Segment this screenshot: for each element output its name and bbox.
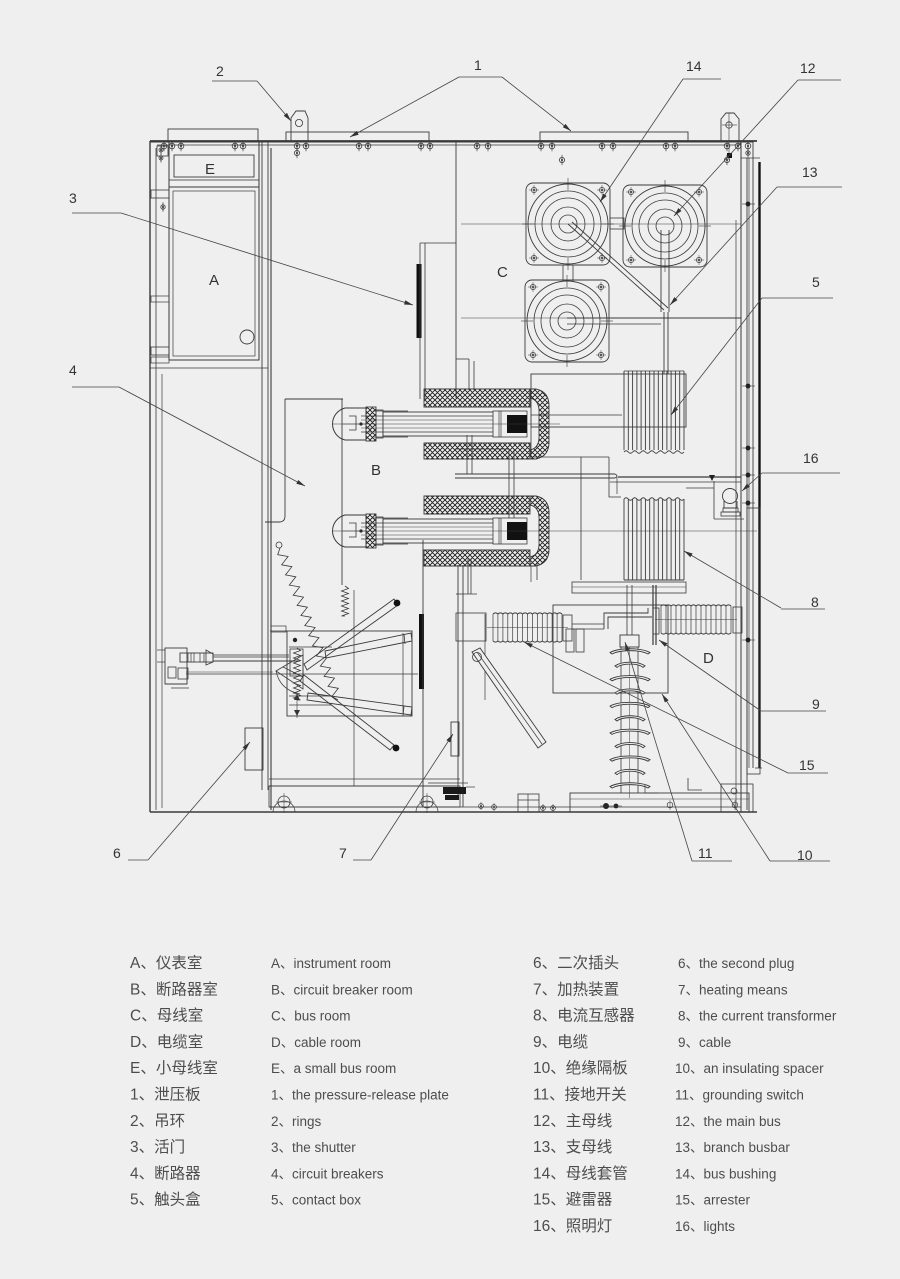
svg-text:6: 6	[113, 845, 121, 861]
svg-text:9: 9	[812, 696, 820, 712]
svg-text:2、rings: 2、rings	[271, 1114, 322, 1129]
svg-text:12: 12	[800, 60, 816, 76]
svg-text:B、circuit breaker room: B、circuit breaker room	[271, 982, 413, 997]
svg-text:D: D	[703, 650, 714, 667]
svg-text:C: C	[497, 264, 508, 281]
svg-text:12、主母线: 12、主母线	[533, 1112, 612, 1130]
svg-text:D、cable room: D、cable room	[271, 1035, 361, 1050]
svg-text:6、the second plug: 6、the second plug	[678, 956, 794, 971]
svg-text:11、接地开关: 11、接地开关	[533, 1086, 627, 1104]
svg-text:2: 2	[216, 63, 224, 79]
svg-text:14、bus bushing: 14、bus bushing	[675, 1166, 776, 1181]
svg-text:4: 4	[69, 362, 77, 378]
svg-text:13、branch busbar: 13、branch busbar	[675, 1140, 790, 1155]
svg-text:9、cable: 9、cable	[678, 1035, 731, 1050]
svg-text:7、heating means: 7、heating means	[678, 982, 788, 997]
svg-text:A、仪表室: A、仪表室	[130, 954, 202, 972]
svg-text:10: 10	[797, 847, 813, 863]
svg-text:B、断路器室: B、断路器室	[130, 980, 218, 998]
svg-text:16: 16	[803, 450, 819, 466]
svg-text:14、母线套管: 14、母线套管	[533, 1164, 628, 1182]
svg-text:1、the pressure-release plate: 1、the pressure-release plate	[271, 1088, 449, 1103]
svg-text:C、bus room: C、bus room	[271, 1009, 351, 1024]
svg-text:2、吊环: 2、吊环	[130, 1113, 185, 1130]
svg-text:6、二次插头: 6、二次插头	[533, 954, 619, 972]
svg-text:4、断路器: 4、断路器	[130, 1164, 201, 1182]
svg-text:7: 7	[339, 845, 347, 861]
svg-text:4、circuit breakers: 4、circuit breakers	[271, 1166, 384, 1181]
svg-text:1、泄压板: 1、泄压板	[130, 1086, 201, 1104]
svg-text:5: 5	[812, 274, 820, 290]
svg-text:13、支母线: 13、支母线	[533, 1138, 612, 1156]
svg-text:15、arrester: 15、arrester	[675, 1193, 751, 1208]
svg-text:A、instrument room: A、instrument room	[271, 956, 391, 971]
svg-text:8: 8	[811, 594, 819, 610]
svg-text:3: 3	[69, 190, 77, 206]
svg-text:10、an insulating spacer: 10、an insulating spacer	[675, 1061, 824, 1076]
svg-text:5、contact box: 5、contact box	[271, 1193, 361, 1208]
svg-text:1: 1	[474, 57, 482, 73]
svg-text:13: 13	[802, 164, 818, 180]
svg-text:9、电缆: 9、电缆	[533, 1033, 588, 1051]
svg-text:7、加热装置: 7、加热装置	[533, 980, 619, 998]
svg-text:3、the shutter: 3、the shutter	[271, 1140, 356, 1155]
svg-text:8、the current transformer: 8、the current transformer	[678, 1009, 837, 1024]
svg-text:E、a small bus room: E、a small bus room	[271, 1061, 396, 1076]
svg-text:11: 11	[698, 845, 713, 861]
svg-text:E: E	[205, 161, 215, 178]
svg-text:15、避雷器: 15、避雷器	[533, 1191, 613, 1209]
svg-text:11、grounding switch: 11、grounding switch	[675, 1088, 804, 1103]
svg-text:5、触头盒: 5、触头盒	[130, 1191, 201, 1209]
svg-text:10、绝缘隔板: 10、绝缘隔板	[533, 1059, 628, 1077]
svg-text:8、电流互感器: 8、电流互感器	[533, 1007, 635, 1025]
svg-text:14: 14	[686, 58, 702, 74]
svg-text:16、lights: 16、lights	[675, 1219, 735, 1234]
svg-text:E、小母线室: E、小母线室	[130, 1059, 218, 1077]
svg-text:12、the main bus: 12、the main bus	[675, 1114, 781, 1129]
svg-text:A: A	[209, 272, 219, 289]
svg-text:B: B	[371, 462, 381, 479]
svg-text:D、电缆室: D、电缆室	[130, 1033, 203, 1051]
svg-text:3、活门: 3、活门	[130, 1138, 185, 1156]
svg-text:15: 15	[799, 757, 815, 773]
svg-text:16、照明灯: 16、照明灯	[533, 1217, 612, 1235]
svg-text:C、母线室: C、母线室	[130, 1007, 203, 1025]
